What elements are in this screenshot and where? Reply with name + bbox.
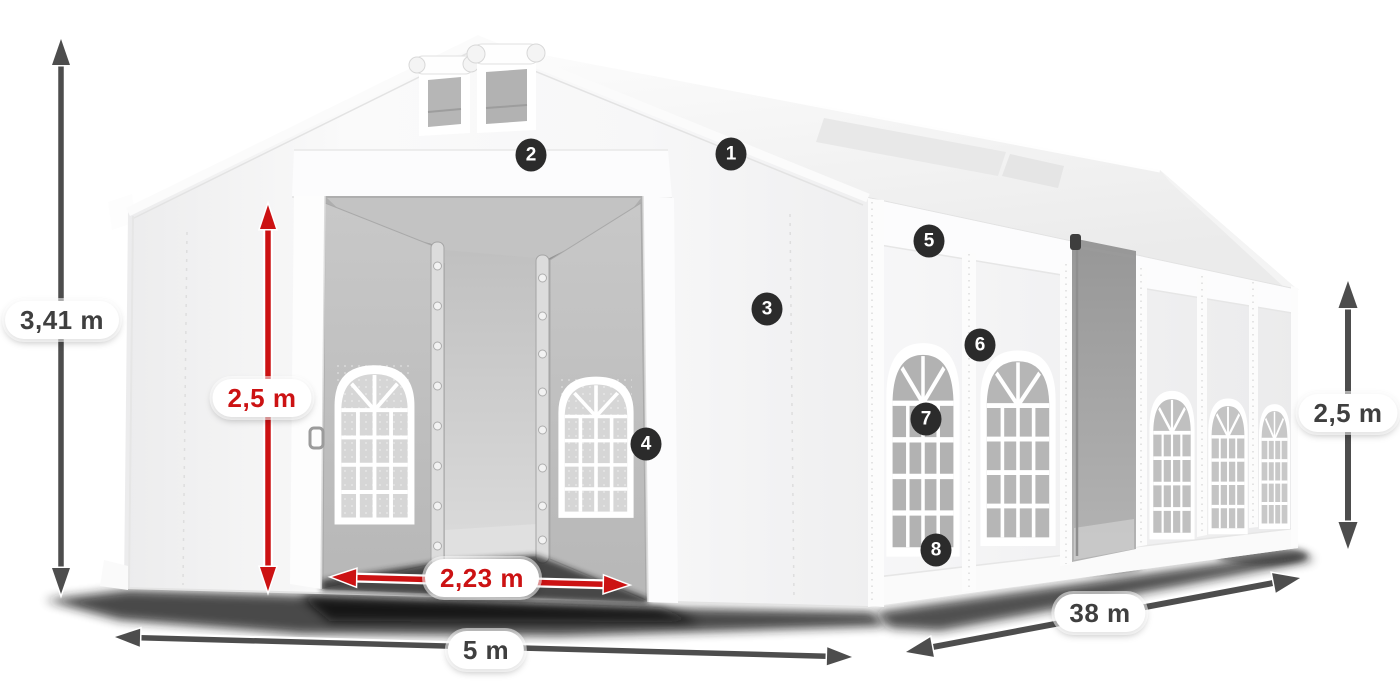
marker-5: 5 (914, 225, 945, 258)
door-height-label: 2,5 m (213, 379, 312, 417)
left-door-panel (323, 203, 444, 588)
marker-4: 4 (631, 428, 662, 461)
marker-8: 8 (921, 534, 952, 567)
tent-illustration (0, 0, 1400, 700)
door-jamb-right (643, 196, 678, 603)
tent-dimension-diagram: 3,41 m 2,5 m 2,23 m 5 m 38 m 2,5 m 1 2 3… (0, 0, 1400, 700)
door-width-label: 2,23 m (425, 559, 539, 597)
side-window-4 (1208, 399, 1247, 535)
door-pole-left (431, 242, 444, 566)
side-height-label: 2,5 m (1299, 394, 1398, 432)
right-door-panel (536, 203, 646, 600)
total-height-label: 3,41 m (5, 301, 119, 339)
marker-6: 6 (965, 329, 996, 362)
side-window-5 (1259, 404, 1290, 529)
marker-1: 1 (716, 138, 747, 171)
side-window-2 (980, 350, 1055, 545)
through-view-gap (445, 250, 536, 562)
door-clamp (1070, 234, 1081, 250)
side-window-1 (886, 343, 959, 557)
door-pole-right (536, 255, 549, 563)
marker-7: 7 (911, 403, 942, 436)
marker-2: 2 (516, 139, 547, 172)
length-label: 38 m (1054, 594, 1145, 632)
side-entrance-opening (1070, 234, 1136, 562)
front-width-label: 5 m (448, 631, 524, 669)
door-header (292, 150, 672, 198)
side-window-3 (1149, 391, 1194, 539)
gable-vent-right (467, 44, 545, 133)
door-opening (321, 196, 648, 604)
gable-vent-left (409, 56, 479, 136)
marker-3: 3 (752, 293, 783, 326)
